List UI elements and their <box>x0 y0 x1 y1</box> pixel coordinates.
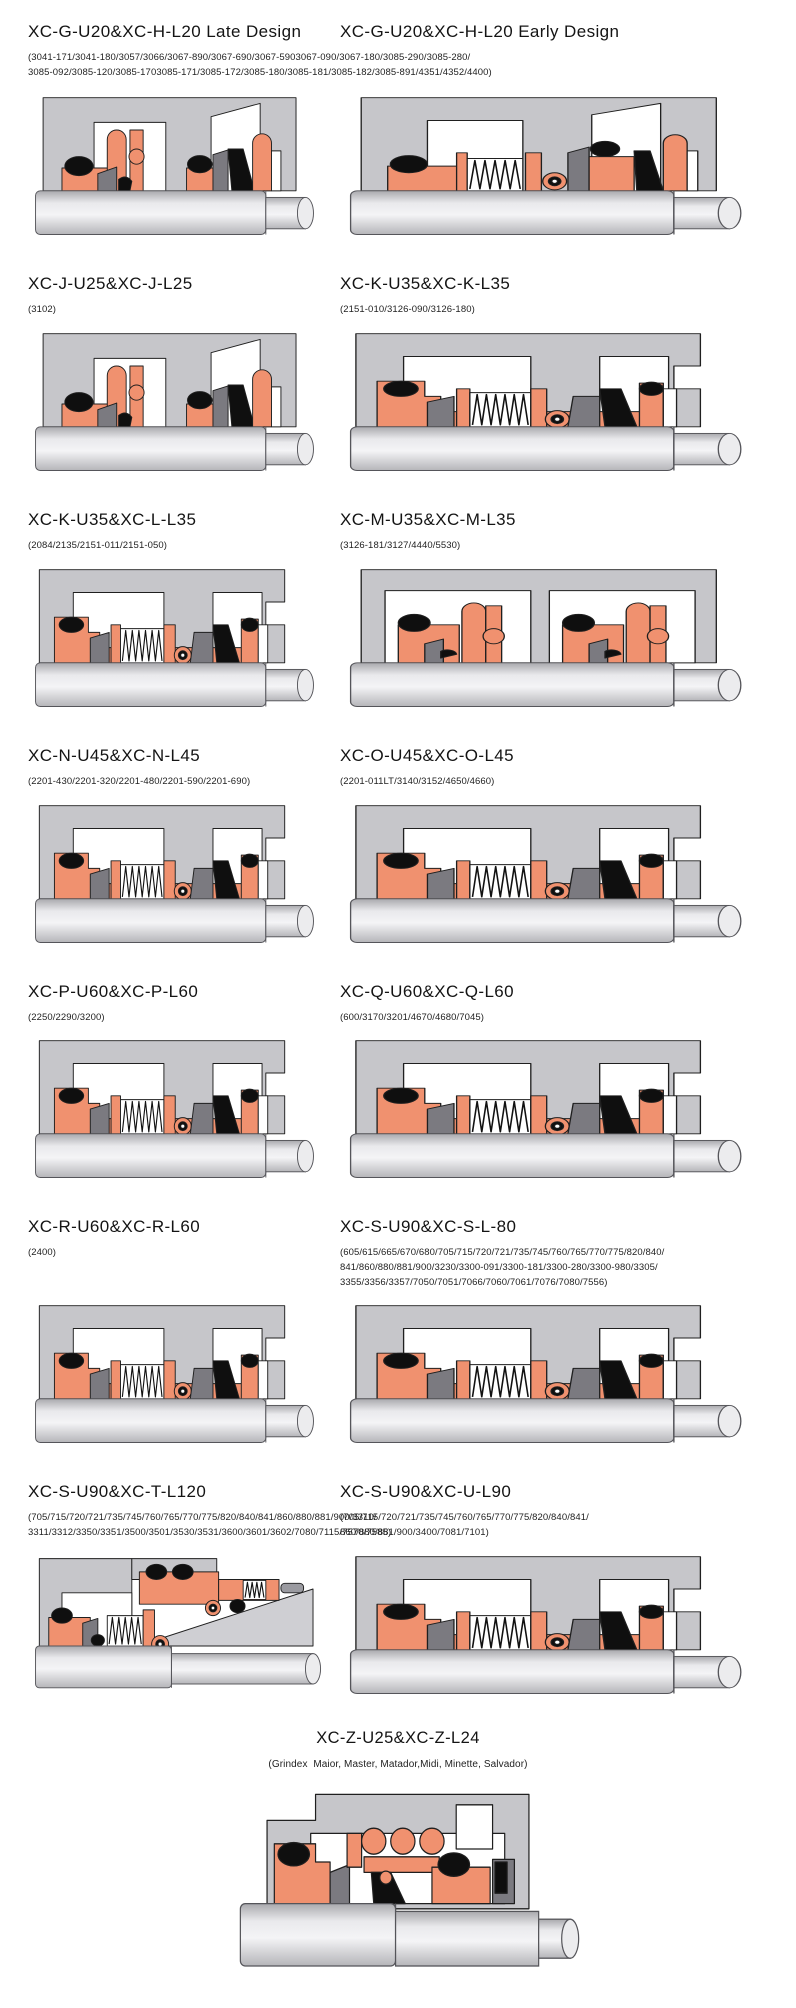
seal-diagram <box>28 554 340 716</box>
section-part-numbers: (2250/2290/3200) <box>28 1011 340 1026</box>
seal-row: XC-G-U20&XC-H-L20 Late Design XC-G-U20&X… <box>28 8 768 244</box>
seal-diagram <box>28 82 340 244</box>
section-part-numbers: (Grindex Maior, Master, Matador,Midi, Mi… <box>28 1757 768 1773</box>
seal-diagram <box>28 1541 340 1703</box>
seal-section: XC-Q-U60&XC-Q-L60 (600/3170/3201/4670/46… <box>340 968 768 1188</box>
section-part-numbers: (3041-171/3041-180/3057/3066/3067-890/30… <box>28 51 768 80</box>
section-title: XC-K-U35&XC-K-L35 <box>340 274 768 294</box>
section-part-numbers: (2151-010/3126-090/3126-180) <box>340 303 768 318</box>
mechanical-seal-cross-section <box>340 328 764 480</box>
mechanical-seal-cross-section <box>28 328 330 480</box>
section-title: XC-G-U20&XC-H-L20 Early Design <box>340 22 768 42</box>
seal-section: XC-S-U90&XC-U-L90 (705/715/720/721/735/7… <box>340 1468 768 1702</box>
seal-section: XC-S-U90&XC-T-L120 (705/715/720/721/735/… <box>28 1468 340 1702</box>
section-title: XC-S-U90&XC-S-L-80 <box>340 1217 768 1237</box>
seal-section: XC-P-U60&XC-P-L60 (2250/2290/3200) <box>28 968 340 1188</box>
section-part-numbers: (2201-011LT/3140/3152/4650/4660) <box>340 775 768 790</box>
mechanical-seal-cross-section <box>28 800 330 952</box>
seal-diagram <box>340 1541 768 1703</box>
section-title: XC-R-U60&XC-R-L60 <box>28 1217 340 1237</box>
seal-diagram <box>28 1290 340 1452</box>
section-title: XC-N-U45&XC-N-L45 <box>28 746 340 766</box>
section-title: XC-S-U90&XC-T-L120 <box>28 1482 340 1502</box>
section-title: XC-S-U90&XC-U-L90 <box>340 1482 768 1502</box>
seal-row: XC-N-U45&XC-N-L45 (2201-430/2201-320/220… <box>28 732 768 952</box>
section-part-numbers: (3126-181/3127/4440/5530) <box>340 539 768 554</box>
seal-row: XC-R-U60&XC-R-L60 (2400) XC-S-U90&XC-S-L… <box>28 1203 768 1452</box>
section-title: XC-M-U35&XC-M-L35 <box>340 510 768 530</box>
seal-diagram <box>28 1772 768 1992</box>
mechanical-seal-cross-section <box>28 1300 330 1452</box>
section-part-numbers: (3102) <box>28 303 340 318</box>
section-title: XC-Z-U25&XC-Z-L24 <box>28 1729 768 1748</box>
section-title: XC-P-U60&XC-P-L60 <box>28 982 340 1002</box>
seal-diagram <box>28 318 340 480</box>
seal-section: XC-R-U60&XC-R-L60 (2400) <box>28 1203 340 1452</box>
seal-diagram <box>28 790 340 952</box>
section-title: XC-J-U25&XC-J-L25 <box>28 274 340 294</box>
section-part-numbers: (2400) <box>28 1246 340 1261</box>
seal-section: XC-K-U35&XC-K-L35 (2151-010/3126-090/312… <box>340 260 768 480</box>
seal-diagram <box>28 1025 340 1187</box>
seal-row: XC-J-U25&XC-J-L25 (3102) XC-K-U35&XC-K-L… <box>28 260 768 480</box>
seal-diagram <box>340 1290 768 1452</box>
seal-row: XC-K-U35&XC-L-L35 (2084/2135/2151-011/21… <box>28 496 768 716</box>
mechanical-seal-cross-section <box>28 1035 330 1187</box>
seal-section: XC-O-U45&XC-O-L45 (2201-011LT/3140/3152/… <box>340 732 768 952</box>
seal-row-centered: XC-Z-U25&XC-Z-L24 (Grindex Maior, Master… <box>28 1729 768 1993</box>
seal-diagram <box>340 1025 768 1187</box>
seal-catalog-page: XC-G-U20&XC-H-L20 Late Design XC-G-U20&X… <box>0 0 796 2008</box>
mechanical-seal-cross-section <box>28 1551 330 1703</box>
section-part-numbers: (705/715/720/721/735/745/760/765/770/775… <box>340 1511 768 1540</box>
section-part-numbers: (605/615/665/670/680/705/715/720/721/735… <box>340 1246 768 1290</box>
section-part-numbers: (2084/2135/2151-011/2151-050) <box>28 539 340 554</box>
mechanical-seal-cross-section <box>340 1551 764 1703</box>
section-title: XC-Q-U60&XC-Q-L60 <box>340 982 768 1002</box>
seal-diagram <box>340 318 768 480</box>
mechanical-seal-cross-section <box>340 1035 764 1187</box>
seal-row: XC-P-U60&XC-P-L60 (2250/2290/3200) XC-Q-… <box>28 968 768 1188</box>
mechanical-seal-cross-section <box>204 1784 592 1992</box>
mechanical-seal-cross-section <box>28 564 330 716</box>
seal-section: XC-N-U45&XC-N-L45 (2201-430/2201-320/220… <box>28 732 340 952</box>
section-title: XC-K-U35&XC-L-L35 <box>28 510 340 530</box>
seal-diagram <box>340 82 768 244</box>
mechanical-seal-cross-section <box>28 92 330 244</box>
mechanical-seal-cross-section <box>340 92 764 244</box>
seal-section: XC-K-U35&XC-L-L35 (2084/2135/2151-011/21… <box>28 496 340 716</box>
mechanical-seal-cross-section <box>340 1300 764 1452</box>
section-title: XC-O-U45&XC-O-L45 <box>340 746 768 766</box>
section-part-numbers: (2201-430/2201-320/2201-480/2201-590/220… <box>28 775 340 790</box>
section-part-numbers: (600/3170/3201/4670/4680/7045) <box>340 1011 768 1026</box>
seal-row: XC-S-U90&XC-T-L120 (705/715/720/721/735/… <box>28 1468 768 1702</box>
mechanical-seal-cross-section <box>340 800 764 952</box>
seal-section: XC-S-U90&XC-S-L-80 (605/615/665/670/680/… <box>340 1203 768 1452</box>
seal-diagram <box>340 554 768 716</box>
section-title: XC-G-U20&XC-H-L20 Late Design <box>28 22 340 42</box>
mechanical-seal-cross-section <box>340 564 764 716</box>
seal-section: XC-J-U25&XC-J-L25 (3102) <box>28 260 340 480</box>
seal-diagram <box>340 790 768 952</box>
section-part-numbers: (705/715/720/721/735/745/760/765/770/775… <box>28 1511 340 1540</box>
seal-section: XC-M-U35&XC-M-L35 (3126-181/3127/4440/55… <box>340 496 768 716</box>
